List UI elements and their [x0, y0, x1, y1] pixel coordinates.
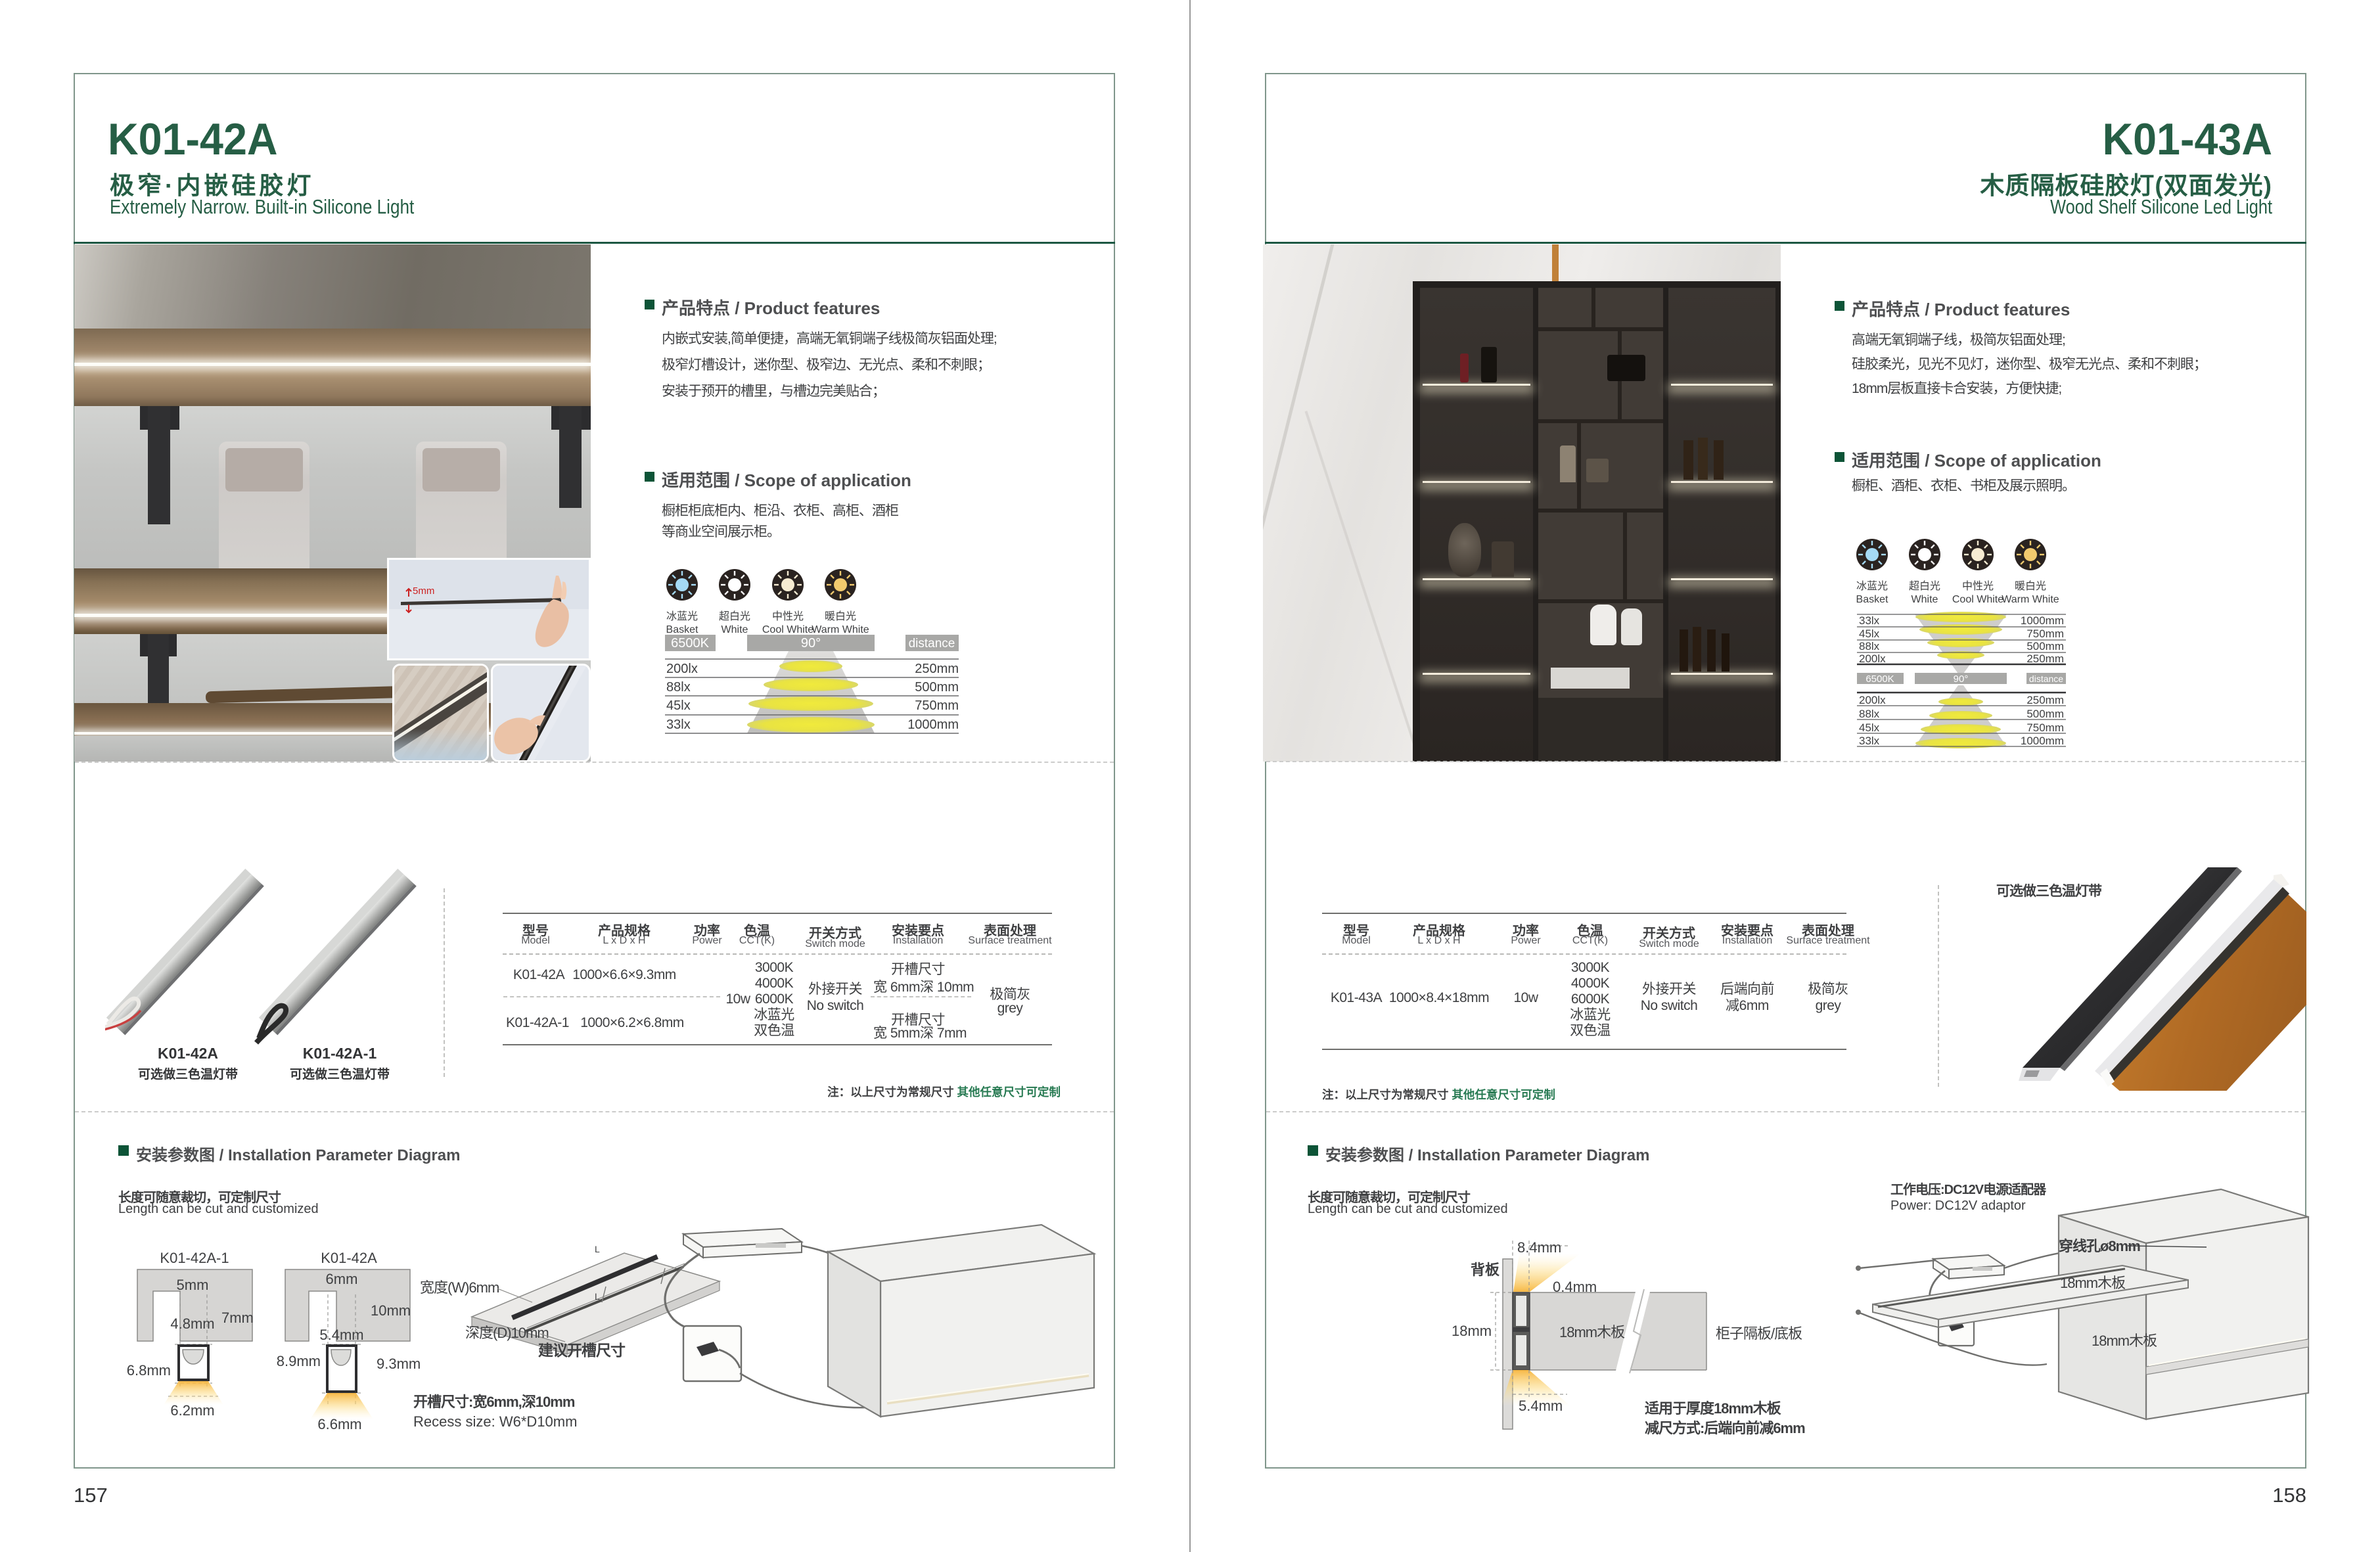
- svg-text:500mm: 500mm: [915, 680, 959, 695]
- svg-text:500mm: 500mm: [2026, 708, 2064, 720]
- svg-text:8.4mm: 8.4mm: [1517, 1239, 1561, 1256]
- svg-text:建议开槽尺寸: 建议开槽尺寸: [538, 1342, 626, 1359]
- svg-text:distance: distance: [2029, 673, 2063, 684]
- svg-text:1000mm: 1000mm: [2021, 735, 2064, 747]
- svg-text:6500K: 6500K: [1865, 673, 1894, 685]
- svg-text:33lx: 33lx: [666, 718, 691, 732]
- svg-text:90°: 90°: [801, 636, 821, 650]
- svg-text:7mm: 7mm: [221, 1310, 254, 1326]
- svg-text:18mm木板: 18mm木板: [2092, 1333, 2157, 1349]
- svg-text:45lx: 45lx: [666, 698, 691, 713]
- svg-text:9.3mm: 9.3mm: [377, 1356, 421, 1372]
- svg-text:18mm木板: 18mm木板: [1559, 1324, 1625, 1340]
- svg-text:88lx: 88lx: [666, 680, 691, 695]
- svg-text:深度(D)10mm: 深度(D)10mm: [465, 1325, 549, 1341]
- svg-text:1000mm: 1000mm: [907, 718, 959, 732]
- svg-text:750mm: 750mm: [2026, 721, 2064, 734]
- svg-text:250mm: 250mm: [2026, 694, 2064, 706]
- svg-text:5mm: 5mm: [177, 1277, 209, 1293]
- svg-text:750mm: 750mm: [2026, 628, 2064, 640]
- svg-text:6mm: 6mm: [326, 1271, 358, 1287]
- svg-text:K01-42A-1: K01-42A-1: [160, 1250, 229, 1266]
- svg-text:45lx: 45lx: [1859, 628, 1880, 640]
- svg-text:4.8mm: 4.8mm: [170, 1315, 214, 1332]
- svg-text:开槽尺寸:宽6mm,深10mm: 开槽尺寸:宽6mm,深10mm: [413, 1394, 575, 1410]
- svg-text:柜子隔板/底板: 柜子隔板/底板: [1716, 1325, 1802, 1342]
- svg-text:45lx: 45lx: [1859, 721, 1880, 734]
- svg-text:0.4mm: 0.4mm: [1553, 1279, 1597, 1295]
- svg-text:6500K: 6500K: [671, 636, 709, 650]
- svg-text:5mm: 5mm: [413, 585, 434, 597]
- svg-text:适用于厚度18mm木板: 适用于厚度18mm木板: [1645, 1400, 1782, 1417]
- svg-text:宽度(W)6mm: 宽度(W)6mm: [420, 1279, 499, 1296]
- svg-text:250mm: 250mm: [2026, 652, 2064, 665]
- svg-text:200lx: 200lx: [666, 662, 698, 676]
- svg-text:6.8mm: 6.8mm: [127, 1362, 171, 1379]
- svg-text:Recess size: W6*D10mm: Recess size: W6*D10mm: [413, 1413, 577, 1430]
- svg-text:1000mm: 1000mm: [2021, 614, 2064, 627]
- svg-text:90°: 90°: [1954, 673, 1969, 685]
- svg-text:88lx: 88lx: [1859, 708, 1880, 720]
- svg-text:10mm: 10mm: [371, 1302, 411, 1319]
- svg-text:背板: 背板: [1471, 1262, 1500, 1278]
- svg-text:8.9mm: 8.9mm: [277, 1353, 321, 1369]
- svg-text:L: L: [595, 1291, 600, 1302]
- svg-text:5.4mm: 5.4mm: [319, 1327, 363, 1343]
- svg-text:distance: distance: [909, 637, 955, 650]
- svg-text:减尺方式:后端向前减6mm: 减尺方式:后端向前减6mm: [1645, 1420, 1805, 1436]
- svg-text:33lx: 33lx: [1859, 735, 1880, 747]
- svg-text:200lx: 200lx: [1859, 694, 1886, 706]
- svg-text:88lx: 88lx: [1859, 640, 1880, 652]
- svg-text:500mm: 500mm: [2026, 640, 2064, 652]
- svg-text:250mm: 250mm: [915, 662, 959, 676]
- svg-text:18mm木板: 18mm木板: [2060, 1275, 2126, 1291]
- svg-text:18mm: 18mm: [1452, 1323, 1492, 1339]
- svg-text:33lx: 33lx: [1859, 614, 1880, 627]
- svg-text:750mm: 750mm: [915, 698, 959, 713]
- svg-text:L: L: [595, 1244, 600, 1254]
- svg-text:200lx: 200lx: [1859, 652, 1886, 665]
- svg-text:5.4mm: 5.4mm: [1519, 1398, 1563, 1414]
- svg-text:K01-42A: K01-42A: [321, 1250, 377, 1266]
